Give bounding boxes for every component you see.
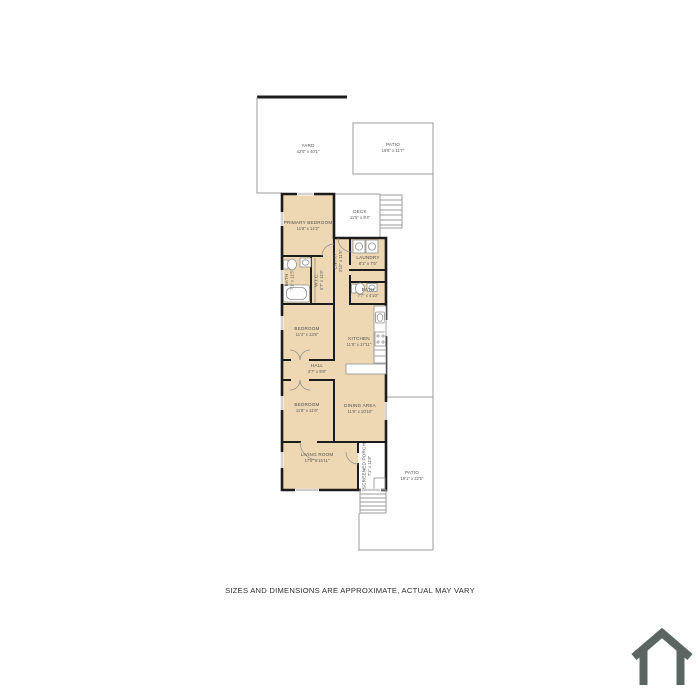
deck-label: DECK <box>353 209 367 214</box>
living-room-fill <box>282 442 358 490</box>
primary-bedroom-label: PRIMARY BEDROOM <box>284 220 333 225</box>
bedroom-label: BEDROOM <box>294 326 319 331</box>
kitchen-island <box>346 364 386 374</box>
screened-porch-label: SCREENED PORCH <box>362 443 367 489</box>
house-outline-icon <box>634 633 690 685</box>
bath2-dims: 7'7" x 4'10" <box>358 293 379 298</box>
wic-label: W.I.C. <box>314 273 319 287</box>
entry-dims: 3'10" x 11'5" <box>338 249 343 272</box>
deck-dims: 11'5" x 9'4" <box>350 215 371 220</box>
laundry-label: LAUNDRY <box>356 255 379 260</box>
kitchen-label: KITCHEN <box>348 336 370 341</box>
laundry-dims: 8'1" x 7'5" <box>359 261 378 266</box>
patio-top-label: PATIO <box>386 142 400 147</box>
bathtub-icon <box>284 285 310 302</box>
dining-area-dims: 11'8" x 10'10" <box>348 409 373 414</box>
living-room-label: LIVING ROOM <box>301 452 334 457</box>
patio-bottom-dims: 19'1" x 22'5" <box>401 476 424 481</box>
porch-equipment <box>374 478 385 489</box>
living-room-dims: 17'5" x 15'11" <box>305 458 330 463</box>
patio-top-dims: 19'8" x 11'7" <box>382 148 405 153</box>
entry-label: ENTRY <box>333 253 338 270</box>
deck-stairs-icon <box>380 195 402 228</box>
floor-plan-canvas: YARD 42'0" x 40'1" PATIO 19'8" x 11'7" D… <box>0 0 700 700</box>
wic-dims: 5'7" x 11'5" <box>319 269 324 290</box>
bath-label: BATH <box>284 274 289 287</box>
sink-icon <box>300 258 311 267</box>
porch-stairs-icon <box>360 490 386 513</box>
yard-dims: 42'0" x 40'1" <box>297 149 320 154</box>
hall-label: HALL <box>311 363 324 368</box>
bath2-label: BATH <box>362 287 375 292</box>
floor-plan-page: YARD 42'0" x 40'1" PATIO 19'8" x 11'7" D… <box>0 0 700 700</box>
screened-porch-dims: 7'1" x 11'8" <box>367 455 372 476</box>
primary-bedroom-dims: 11'8" x 14'2" <box>297 226 320 231</box>
kitchen-dims: 11'8" x 17'11" <box>347 342 372 347</box>
yard-outline <box>257 97 282 193</box>
bath-dims: 7'1" x 11'5" <box>290 269 295 290</box>
hall-dims: 3'7" x 9'8" <box>308 369 327 374</box>
bedroom2-label: BEDROOM <box>294 402 319 407</box>
patio-bottom-label: PATIO <box>405 470 419 475</box>
dining-area-label: DINING AREA <box>344 403 377 408</box>
bedroom-dims: 11'4" x 13'8" <box>296 332 319 337</box>
disclaimer-text: SIZES AND DIMENSIONS ARE APPROXIMATE, AC… <box>225 586 475 595</box>
toilet-icon <box>284 259 297 270</box>
fridge-icon <box>374 350 386 363</box>
yard-label: YARD <box>301 143 315 148</box>
bedroom2-dims: 11'8" x 11'6" <box>296 408 319 413</box>
